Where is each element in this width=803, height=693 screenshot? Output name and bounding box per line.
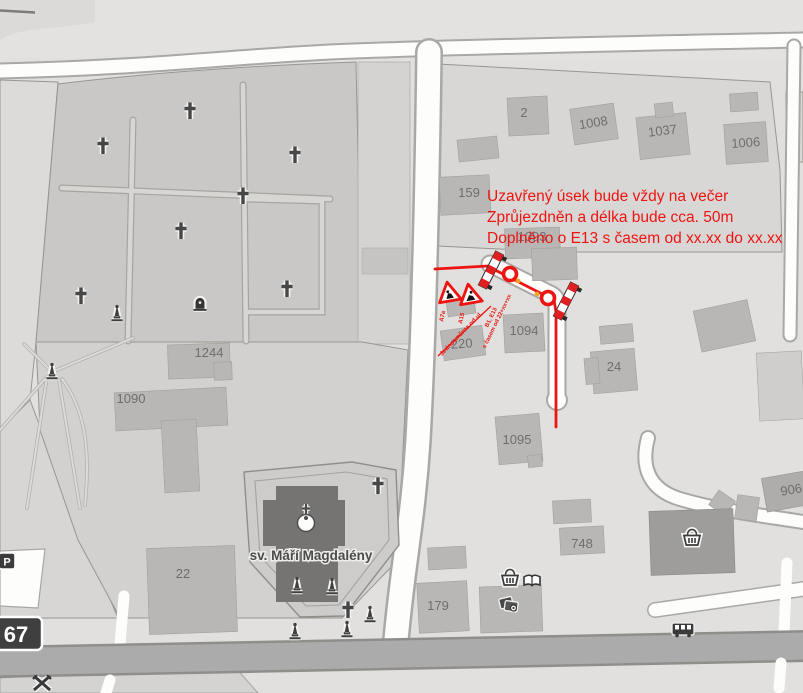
building-label-179: 179 <box>427 598 449 613</box>
parking-road <box>120 596 124 644</box>
east-crossing <box>784 563 787 634</box>
library-book-icon <box>524 575 540 585</box>
building-label-1244: 1244 <box>195 345 224 360</box>
no-entry-sign-icon <box>504 268 517 281</box>
marker-dot <box>516 279 521 284</box>
parking-sign: P <box>0 553 15 569</box>
building-label-1094: 1094 <box>510 323 539 338</box>
supermarket-basket-icon <box>684 530 700 546</box>
building-label-24: 24 <box>607 359 621 374</box>
church-label: sv. Máří Magdalény <box>250 548 373 563</box>
main-road <box>0 646 803 662</box>
small-plot <box>362 248 408 274</box>
building-label-748: 748 <box>571 536 593 551</box>
bus-stop-icon <box>672 623 694 637</box>
marker-dot <box>535 292 540 297</box>
road-number-label: 67 <box>4 622 28 647</box>
road-number-badge: 67 <box>0 617 42 650</box>
east-plot <box>756 351 803 421</box>
building-label-1006: 1006 <box>731 134 761 151</box>
closure-annotation-line2: Zprůjezdněn a délka bude cca. 50m <box>487 209 733 226</box>
no-entry-sign-icon <box>542 292 555 305</box>
building-label-1090: 1090 <box>117 391 146 406</box>
map-canvas[interactable]: sv. Máří Magdalény <box>0 0 803 693</box>
closure-annotation-line1: Uzavřený úsek bude vždy na večer <box>487 188 728 205</box>
building-label-2: 2 <box>520 105 527 120</box>
east-cemetery-strip <box>358 62 410 344</box>
closure-annotation-line3: Doplněno o E13 s časem od xx.xx do xx.xx <box>487 230 783 247</box>
building-label-1095: 1095 <box>503 432 532 447</box>
building-label-159: 159 <box>458 185 480 200</box>
shop-basket-icon <box>502 570 518 586</box>
building-label-22: 22 <box>176 566 190 581</box>
tombstone-icon <box>194 298 207 310</box>
parking-sign-label: P <box>3 557 10 569</box>
